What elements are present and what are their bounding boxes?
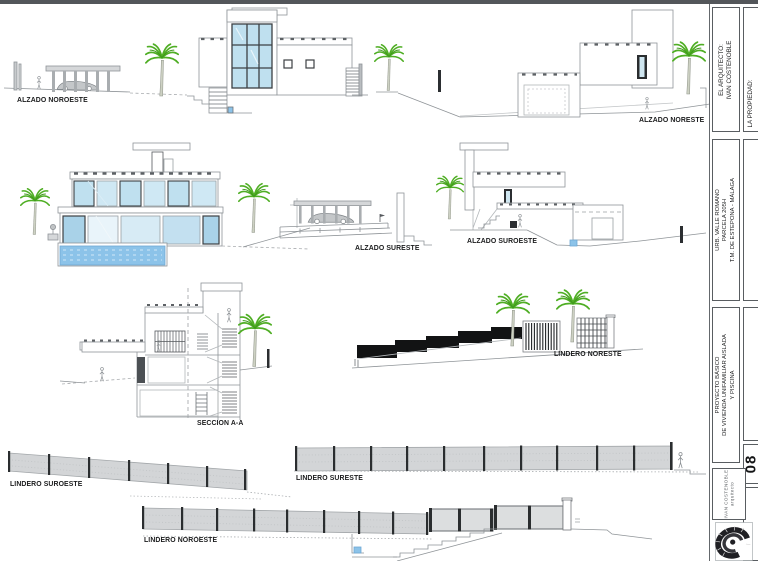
location-line3: T.M. DE ESTEPONA - MÁLAGA bbox=[730, 139, 737, 301]
titleblock-architect-cell: EL ARQUITECTO: IVAN COSTENOBLE bbox=[712, 7, 740, 132]
label-seccion-aa: SECCION A-A bbox=[197, 420, 243, 427]
alzado-suroeste-drawing bbox=[437, 143, 706, 246]
titleblock-empty-cell-1 bbox=[743, 139, 758, 301]
architect-label: EL ARQUITECTO: bbox=[718, 7, 726, 132]
firm-role: arquitecto bbox=[729, 468, 735, 520]
label-alzado-noreste: ALZADO NORESTE bbox=[639, 117, 704, 124]
project-line2: DE VIVIENDA UNIFAMILIAR AISLADA bbox=[722, 307, 729, 463]
property-label: LA PROPIEDAD: bbox=[747, 7, 755, 127]
titleblock-property-cell: LA PROPIEDAD: bbox=[743, 7, 758, 132]
titleblock-location-cell: URB. VALLE ROMANO PARCELA 205H T.M. DE E… bbox=[712, 139, 740, 301]
titleblock-divider-line bbox=[709, 4, 710, 561]
project-line3: Y PISCINA bbox=[730, 307, 737, 463]
label-alzado-sureste: ALZADO SURESTE bbox=[355, 245, 420, 252]
lindero-suroeste-drawing bbox=[8, 451, 292, 499]
lindero-sureste-drawing bbox=[294, 442, 706, 474]
plan-sheet: { "page": {"background": "#ffffff", "top… bbox=[0, 0, 758, 561]
alzado-noreste-drawing bbox=[375, 10, 710, 117]
alzado-sureste-house-drawing bbox=[21, 143, 310, 266]
firm-logo bbox=[715, 522, 753, 561]
lindero-noroeste-drawing bbox=[142, 498, 652, 561]
seccion-aa-drawing bbox=[60, 283, 272, 420]
architect-name: IVAN COSTENOBLE bbox=[726, 7, 734, 132]
label-lindero-noroeste: LINDERO NOROESTE bbox=[144, 537, 217, 544]
label-lindero-noreste: LINDERO NORESTE bbox=[554, 351, 622, 358]
drawing-canvas bbox=[0, 0, 758, 561]
titleblock-project-cell: PROYECTO BÁSICO DE VIVIENDA UNIFAMILIAR … bbox=[712, 307, 740, 463]
label-alzado-noroeste: ALZADO NOROESTE bbox=[17, 97, 88, 104]
titleblock-empty-cell-2 bbox=[743, 307, 758, 441]
alzado-sureste-pergola-drawing bbox=[280, 193, 432, 245]
label-alzado-suroeste: ALZADO SUROESTE bbox=[467, 238, 537, 245]
location-line1: URB. VALLE ROMANO bbox=[715, 139, 722, 301]
label-lindero-sureste: LINDERO SURESTE bbox=[296, 475, 363, 482]
titleblock-firm-cell: IVAN COSTENOBLE arquitecto bbox=[712, 468, 746, 520]
location-line2: PARCELA 205H bbox=[722, 139, 729, 301]
label-lindero-suroeste: LINDERO SUROESTE bbox=[10, 481, 82, 488]
project-line1: PROYECTO BÁSICO bbox=[715, 307, 722, 463]
nautilus-shell-icon bbox=[715, 522, 753, 561]
firm-name: IVAN COSTENOBLE bbox=[723, 468, 729, 520]
